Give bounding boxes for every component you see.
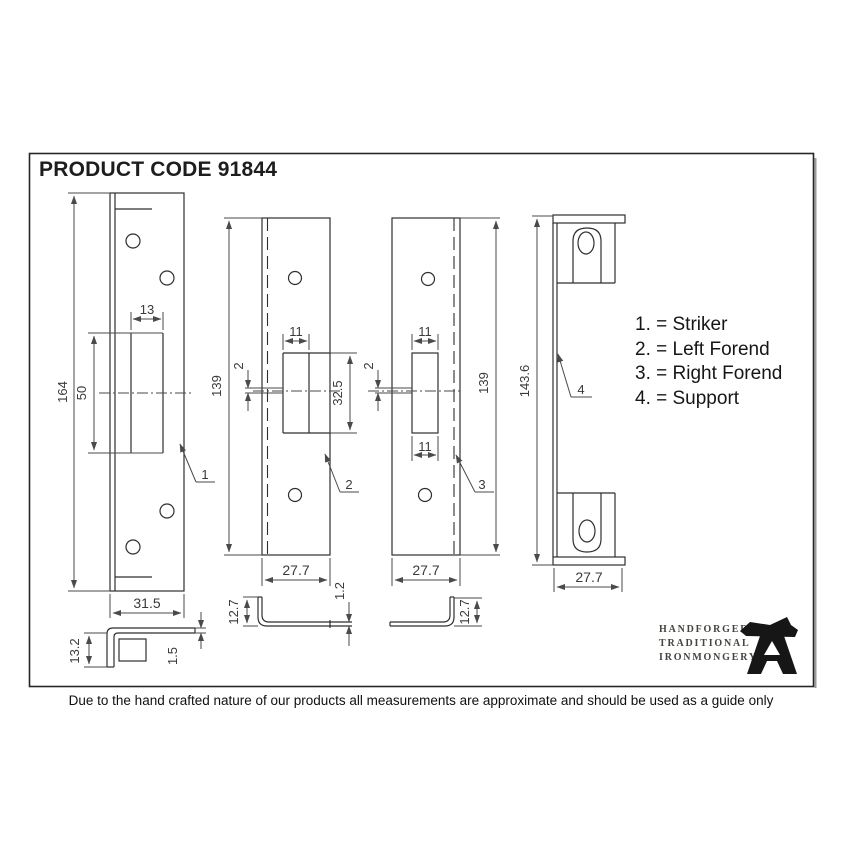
striker-hole <box>160 271 174 285</box>
left-forend-hole <box>289 489 302 502</box>
support-height-dim: 143.6 <box>517 365 532 398</box>
legend-item-right-forend: 3. = Right Forend <box>635 362 782 387</box>
right-forend-hole <box>422 273 435 286</box>
support-callout: 4 <box>577 382 584 397</box>
striker-profile-height-dim: 13.2 <box>67 638 82 663</box>
striker-height-dim: 164 <box>55 381 70 403</box>
left-forend-profile: 12.7 1.2 <box>226 582 352 646</box>
right-forend-callout: 3 <box>478 477 485 492</box>
support-bottom-slot-hole <box>579 520 595 542</box>
striker-hole <box>160 504 174 518</box>
striker-drawing: 164 50 13 31.5 1 <box>55 193 215 667</box>
striker-profile: 13.2 1.5 <box>67 612 206 667</box>
striker-hole <box>126 540 140 554</box>
anvil-icon <box>738 612 800 678</box>
support-top-lug <box>573 228 601 283</box>
disclaimer-text: Due to the hand crafted nature of our pr… <box>0 693 842 708</box>
left-forend-width-dim: 27.7 <box>282 562 309 578</box>
right-forend-slot <box>412 353 438 433</box>
right-forend-width-dim: 27.7 <box>412 562 439 578</box>
legend-item-striker: 1. = Striker <box>635 313 782 338</box>
left-forend-height-dim: 139 <box>209 375 224 397</box>
left-forend-slot-height-dim: 32.5 <box>330 380 345 405</box>
legend-item-left-forend: 2. = Left Forend <box>635 338 782 363</box>
right-forend-slot-width-bottom-dim: 11 <box>418 439 432 454</box>
left-forend-drawing: 2 139 11 32.5 2 27.7 <box>209 218 359 646</box>
right-forend-hole <box>419 489 432 502</box>
right-forend-offset-dim: 2 <box>361 362 376 369</box>
support-bottom-lug <box>573 493 601 552</box>
right-forend-slot-width-top-dim: 11 <box>418 324 432 339</box>
striker-callout: 1 <box>201 467 208 482</box>
striker-width-dim: 31.5 <box>133 595 160 611</box>
right-forend-profile-height-dim: 12.7 <box>457 599 472 624</box>
page-title: PRODUCT CODE 91844 <box>39 158 277 182</box>
left-forend-slot-width-dim: 11 <box>289 324 303 339</box>
support-top-slot-hole <box>578 232 594 254</box>
technical-drawing: 164 50 13 31.5 1 <box>0 0 842 842</box>
left-forend-profile-height-dim: 12.7 <box>226 599 241 624</box>
support-drawing: 143.6 4 27.7 <box>517 215 625 592</box>
striker-hole <box>126 234 140 248</box>
left-forend-offset-dim: 2 <box>231 362 246 369</box>
right-forend-profile: 12.7 <box>390 597 482 626</box>
right-forend-height-dim: 139 <box>476 372 491 394</box>
striker-slot-width-dim: 13 <box>140 302 154 317</box>
left-forend-hole <box>289 272 302 285</box>
left-forend-callout: 2 <box>345 477 352 492</box>
striker-slot-height-dim: 50 <box>74 386 89 400</box>
right-forend-drawing: 2 11 11 139 3 27.7 <box>361 218 500 626</box>
striker-profile-box <box>119 639 146 661</box>
spec-sheet: 164 50 13 31.5 1 <box>0 0 842 842</box>
striker-profile-thickness-dim: 1.5 <box>165 647 180 665</box>
support-width-dim: 27.7 <box>575 569 602 585</box>
left-forend-profile-thickness-dim: 1.2 <box>332 582 347 600</box>
parts-legend: 1. = Striker 2. = Left Forend 3. = Right… <box>635 313 782 411</box>
legend-item-support: 4. = Support <box>635 387 782 412</box>
